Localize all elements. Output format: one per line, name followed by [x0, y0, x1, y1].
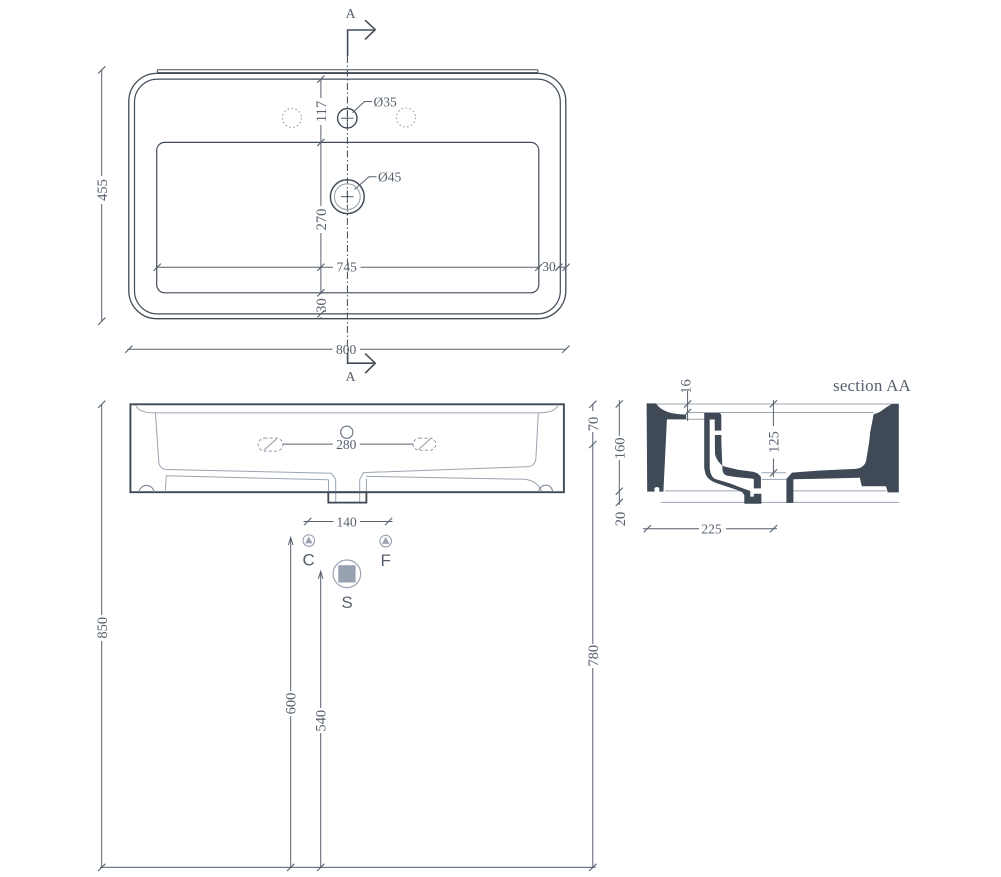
svg-text:section AA: section AA — [833, 376, 912, 395]
svg-text:Ø45: Ø45 — [378, 170, 401, 185]
svg-text:780: 780 — [586, 645, 602, 667]
svg-text:30: 30 — [542, 259, 556, 274]
svg-text:140: 140 — [336, 514, 357, 529]
svg-text:850: 850 — [95, 617, 111, 639]
svg-text:70: 70 — [586, 417, 602, 432]
svg-text:540: 540 — [314, 710, 330, 732]
svg-text:Ø35: Ø35 — [374, 94, 397, 109]
svg-text:C: C — [302, 551, 314, 570]
svg-text:A: A — [346, 370, 357, 385]
svg-text:270: 270 — [314, 209, 330, 231]
svg-text:117: 117 — [314, 101, 330, 122]
svg-text:745: 745 — [337, 260, 358, 275]
svg-text:600: 600 — [284, 693, 300, 715]
svg-text:800: 800 — [336, 342, 357, 357]
svg-text:20: 20 — [613, 512, 629, 527]
svg-text:455: 455 — [95, 179, 111, 201]
svg-text:F: F — [381, 551, 391, 570]
svg-text:30: 30 — [314, 298, 330, 313]
svg-text:160: 160 — [612, 438, 628, 460]
svg-text:16: 16 — [678, 379, 694, 394]
svg-text:225: 225 — [701, 522, 722, 537]
svg-text:125: 125 — [767, 431, 783, 453]
svg-text:S: S — [341, 593, 352, 612]
svg-text:A: A — [345, 7, 356, 22]
svg-text:280: 280 — [336, 437, 357, 452]
